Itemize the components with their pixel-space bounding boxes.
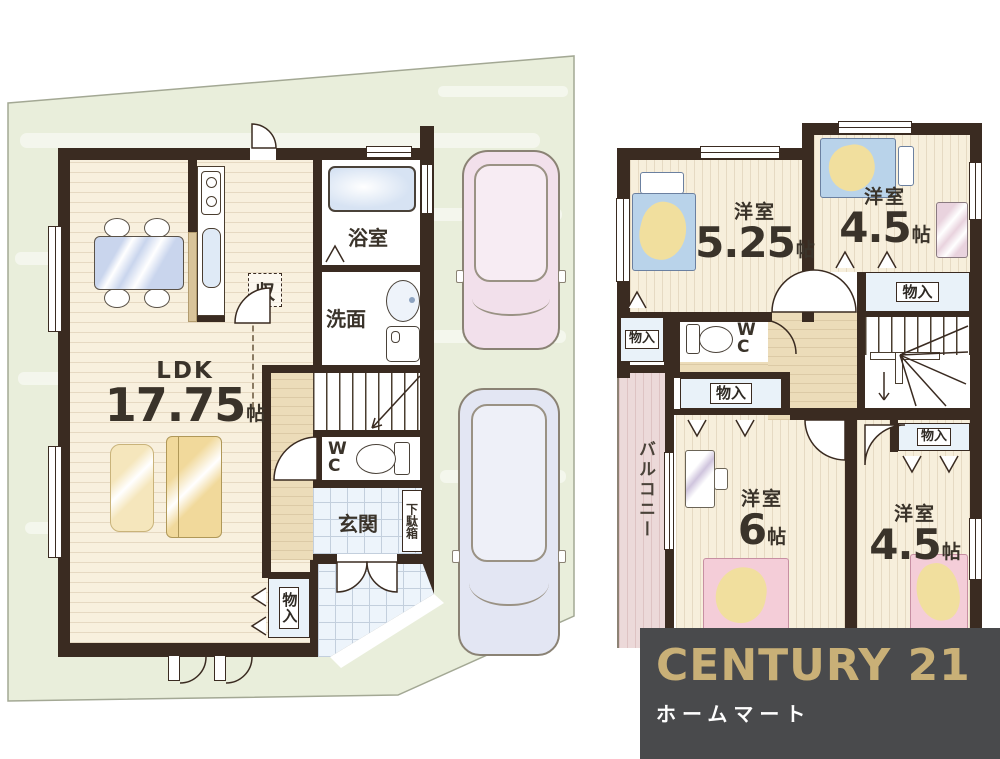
wc2-label: WC: [737, 322, 752, 356]
stairs-2f: [865, 317, 970, 408]
blanket: [912, 560, 963, 624]
car-lavender-cabin: [471, 404, 547, 562]
window-bedroom2-right: [969, 162, 982, 220]
storage-2f-center: 物入: [680, 378, 782, 409]
f2-storageR-left-wall: [890, 420, 898, 452]
bedroom1-size-unit: 帖: [796, 241, 815, 260]
bedroom2-size: 4.5: [839, 209, 910, 247]
stairs-2f-landing-divider: [870, 352, 940, 360]
balcony-label: バルコニー: [633, 440, 658, 540]
car-pink: [462, 150, 560, 350]
storage-2f-under-bedroom2: 物入: [865, 272, 970, 312]
f2-storageC-right-wall: [782, 372, 790, 415]
f2-stairs-left-wall: [857, 272, 865, 412]
car-mirror: [558, 270, 566, 283]
f2-balcony-top-wall: [617, 365, 674, 373]
stairs-2f-landing-divider2: [895, 352, 903, 384]
car-pink-hood-line: [472, 280, 550, 316]
room-label-bedroom1: 洋室 5.25 帖: [700, 203, 810, 262]
bedroom4-size: 4.5: [869, 526, 940, 564]
f2-storageL-right-wall: [664, 312, 672, 372]
bedroom2-size-unit: 帖: [912, 226, 931, 245]
century21-company-text: ホームマート: [656, 698, 1000, 727]
car-lavender: [458, 388, 560, 656]
bed-bedroom3: [703, 558, 789, 636]
bed-bedroom1: [632, 193, 696, 271]
toilet-2f-bowl: [699, 326, 733, 353]
desk-bedroom3: [685, 450, 715, 508]
storage-2f-right: 物入: [898, 423, 970, 451]
toilet-2f-tank: [686, 324, 700, 354]
blanket: [712, 563, 771, 627]
bed-pillow: [640, 172, 684, 194]
window-bedroom1-left: [616, 198, 630, 282]
desk-chair-bedroom3: [714, 468, 728, 490]
car-pink-cabin: [474, 164, 548, 282]
f2-hall-bottom-wall: [790, 408, 982, 420]
century21-brand-text: CENTURY 21: [656, 644, 1000, 688]
window-bedroom2-top: [838, 121, 912, 134]
bedroom3-size: 6: [738, 511, 766, 549]
car-mirror: [452, 550, 460, 563]
storage-label: 物入: [896, 282, 938, 303]
floorplan-canvas: 収 下駄箱 物入 LDK 17.75 帖 浴室 洗面: [0, 0, 1000, 759]
bedroom1-size: 5.25: [695, 224, 795, 262]
storage-2f-left: 物入: [620, 317, 664, 362]
bedroom4-size-unit: 帖: [942, 543, 961, 562]
bed-pillow: [898, 146, 914, 186]
car-lavender-hood-line: [469, 558, 549, 606]
car-mirror: [456, 270, 464, 283]
room-label-bedroom2: 洋室 4.5 帖: [825, 188, 945, 247]
bedroom3-size-unit: 帖: [767, 528, 786, 547]
century21-logo: CENTURY 21 ホームマート: [640, 628, 1000, 759]
f2-storageC-bottom-wall: [674, 409, 790, 415]
blanket: [634, 197, 693, 264]
window-bedroom3-balcony: [664, 452, 674, 550]
storage-label: 物入: [625, 330, 659, 348]
stairs-2f-treads: [865, 317, 970, 355]
window-bedroom1-top: [700, 146, 780, 159]
storage-label: 物入: [710, 383, 752, 404]
room-label-bedroom3: 洋室 6 帖: [712, 490, 812, 549]
storage-label: 物入: [917, 428, 951, 446]
room-label-bedroom4: 洋室 4.5 帖: [855, 505, 975, 564]
car-mirror: [558, 550, 566, 563]
